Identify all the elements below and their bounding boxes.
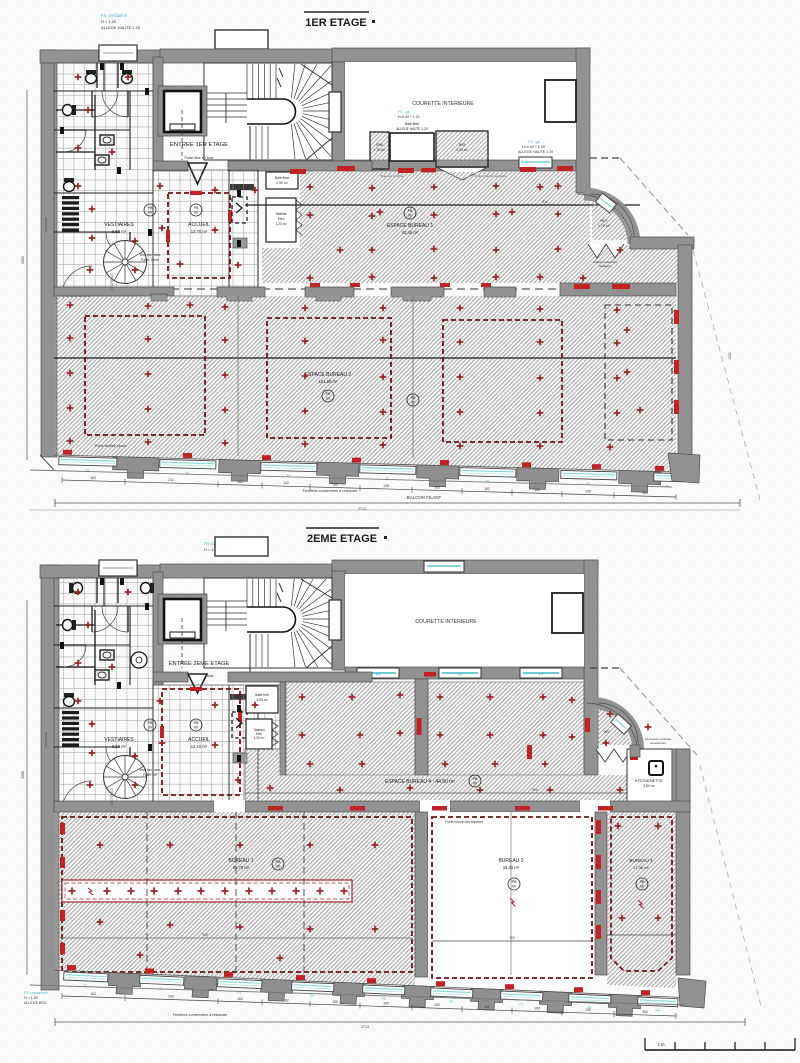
svg-text:3,50 m²: 3,50 m² bbox=[643, 784, 655, 788]
svg-text:90: 90 bbox=[640, 885, 644, 889]
svg-text:VESTIAIRE: VESTIAIRE bbox=[44, 217, 48, 233]
svg-text:Tableau: Tableau bbox=[275, 212, 287, 216]
svg-text:Palier 1er: Palier 1er bbox=[143, 773, 158, 777]
svg-text:3,50 m²: 3,50 m² bbox=[256, 698, 268, 702]
svg-text:160: 160 bbox=[383, 1002, 389, 1006]
svg-text:Salle Info: Salle Info bbox=[255, 693, 269, 697]
svg-text:F1: F1 bbox=[287, 474, 291, 478]
svg-text:121,50 m²: 121,50 m² bbox=[319, 379, 338, 384]
svg-text:139: 139 bbox=[585, 1008, 591, 1012]
svg-text:H=0.40 + 1.20: H=0.40 + 1.20 bbox=[398, 115, 420, 119]
svg-text:BUREAU 1: BUREAU 1 bbox=[228, 858, 253, 864]
svg-text:1 m: 1 m bbox=[658, 1042, 665, 1047]
svg-text:H = 1.20: H = 1.20 bbox=[24, 996, 38, 1000]
svg-text:PB: PB bbox=[408, 209, 413, 213]
svg-text:2555: 2555 bbox=[21, 771, 25, 779]
svg-text:0,90 m²: 0,90 m² bbox=[276, 181, 288, 185]
svg-text:accessoires: accessoires bbox=[650, 741, 666, 745]
svg-text:163: 163 bbox=[90, 992, 96, 996]
svg-text:163: 163 bbox=[90, 476, 96, 480]
svg-text:ESPACE BUREAU 2: ESPACE BUREAU 2 bbox=[305, 372, 352, 378]
svg-text:FS condamné: FS condamné bbox=[24, 991, 48, 995]
svg-text:ventilation: ventilation bbox=[598, 264, 612, 268]
svg-text:BUREAU 3: BUREAU 3 bbox=[630, 858, 653, 863]
svg-text:COURETTE INTERIEURE: COURETTE INTERIEURE bbox=[412, 101, 474, 107]
svg-text:VESTIBULE: VESTIBULE bbox=[110, 788, 114, 806]
svg-text:PB: PB bbox=[148, 721, 153, 725]
svg-text:F6: F6 bbox=[449, 1000, 453, 1004]
svg-text:Porte libre en bois: Porte libre en bois bbox=[185, 156, 214, 160]
svg-text:90: 90 bbox=[473, 782, 477, 786]
svg-text:90: 90 bbox=[194, 726, 198, 730]
svg-text:90: 90 bbox=[512, 885, 516, 889]
svg-text:VESTIAIRES: VESTIAIRES bbox=[104, 222, 134, 228]
svg-text:43,45 m²: 43,45 m² bbox=[402, 230, 419, 235]
svg-text:PB: PB bbox=[326, 392, 331, 396]
svg-text:90: 90 bbox=[148, 211, 152, 215]
svg-text:1,20 m²: 1,20 m² bbox=[275, 222, 287, 226]
svg-text:R05: R05 bbox=[459, 143, 465, 147]
svg-text:Porte fenêtre neuve: Porte fenêtre neuve bbox=[95, 444, 127, 448]
svg-text:12,10 m²: 12,10 m² bbox=[191, 744, 208, 749]
svg-text:PB: PB bbox=[194, 721, 199, 725]
svg-text:Mini esc. vers: Mini esc. vers bbox=[140, 768, 161, 772]
svg-text:142: 142 bbox=[283, 481, 289, 485]
svg-text:1ER ETAGE: 1ER ETAGE bbox=[305, 17, 367, 29]
svg-text:232: 232 bbox=[168, 995, 174, 999]
svg-text:F4: F4 bbox=[310, 994, 314, 998]
svg-text:163: 163 bbox=[534, 488, 540, 492]
svg-text:ACCUEIL: ACCUEIL bbox=[188, 222, 210, 228]
svg-text:R07: R07 bbox=[600, 218, 608, 223]
svg-text:VESTIBULE: VESTIBULE bbox=[110, 273, 114, 291]
svg-text:90: 90 bbox=[408, 214, 412, 218]
svg-text:1,70 m²: 1,70 m² bbox=[374, 148, 386, 152]
svg-text:162: 162 bbox=[484, 1005, 490, 1009]
svg-text:0,90 m²: 0,90 m² bbox=[456, 148, 468, 152]
svg-text:PB: PB bbox=[148, 206, 153, 210]
svg-text:ALLEGE HAUTE 1.20: ALLEGE HAUTE 1.20 bbox=[396, 127, 427, 131]
svg-text:Palier 2ème: Palier 2ème bbox=[141, 258, 159, 262]
svg-text:COURETTE INTERIEURE: COURETTE INTERIEURE bbox=[415, 619, 477, 625]
svg-text:163: 163 bbox=[434, 485, 440, 489]
svg-text:ESPACE BUREAU 1: ESPACE BUREAU 1 bbox=[387, 223, 434, 229]
svg-text:2555: 2555 bbox=[21, 256, 25, 264]
svg-text:ACCUEIL: ACCUEIL bbox=[188, 737, 210, 743]
svg-text:PB: PB bbox=[512, 880, 517, 884]
svg-text:9,50 m²: 9,50 m² bbox=[112, 744, 127, 749]
svg-text:F1: F1 bbox=[666, 484, 670, 488]
svg-text:ALLEGE BSO: ALLEGE BSO bbox=[24, 1001, 47, 1005]
svg-text:162: 162 bbox=[237, 480, 243, 484]
svg-text:Fenêtres conservées à restaure: Fenêtres conservées à restaurer bbox=[303, 489, 359, 493]
svg-text:F5: F5 bbox=[381, 997, 385, 1001]
svg-text:Elec: Elec bbox=[278, 217, 285, 221]
svg-text:FS...gé: FS...gé bbox=[398, 110, 410, 114]
svg-text:162: 162 bbox=[283, 998, 289, 1002]
svg-text:13,70 m²: 13,70 m² bbox=[191, 229, 208, 234]
svg-text:PB: PB bbox=[194, 206, 199, 210]
svg-text:H = 1.20: H = 1.20 bbox=[101, 19, 117, 24]
svg-text:2713: 2713 bbox=[358, 507, 366, 511]
svg-text:WC: WC bbox=[604, 729, 611, 734]
svg-text:17,30 m²: 17,30 m² bbox=[633, 865, 649, 870]
svg-text:H=0.40 + 1.20: H=0.40 + 1.20 bbox=[522, 145, 545, 149]
svg-text:F7: F7 bbox=[539, 672, 544, 677]
svg-text:F9: F9 bbox=[655, 1009, 659, 1013]
svg-text:9,50 m²: 9,50 m² bbox=[112, 229, 127, 234]
svg-text:139: 139 bbox=[383, 484, 389, 488]
svg-text:162: 162 bbox=[434, 1003, 440, 1007]
svg-text:163: 163 bbox=[642, 491, 648, 495]
svg-text:Mini esc. vers: Mini esc. vers bbox=[140, 253, 161, 257]
svg-text:Baie libre: Baie libre bbox=[275, 176, 289, 180]
svg-text:1,20 m²: 1,20 m² bbox=[254, 736, 265, 740]
svg-text:162: 162 bbox=[237, 997, 243, 1001]
svg-text:F1: F1 bbox=[386, 477, 390, 481]
svg-text:90: 90 bbox=[194, 211, 198, 215]
svg-text:ALLEGE HAUTE 1.20: ALLEGE HAUTE 1.20 bbox=[101, 25, 141, 30]
svg-text:PB: PB bbox=[473, 777, 478, 781]
svg-text:Fenêtres conservées à restaure: Fenêtres conservées à restaurer bbox=[173, 1013, 229, 1017]
svg-text:VESTIAIRES: VESTIAIRES bbox=[104, 737, 134, 743]
svg-text:211: 211 bbox=[168, 478, 174, 482]
svg-text:F7: F7 bbox=[519, 1003, 523, 1007]
svg-text:65,70 m²: 65,70 m² bbox=[233, 865, 250, 870]
svg-text:916: 916 bbox=[532, 788, 538, 792]
svg-text:BALCON FILANT: BALCON FILANT bbox=[407, 495, 442, 500]
svg-text:ALLEGE HAUTE 1.20: ALLEGE HAUTE 1.20 bbox=[518, 150, 553, 154]
svg-text:163: 163 bbox=[332, 483, 338, 487]
svg-text:163: 163 bbox=[534, 1006, 540, 1010]
svg-text:162: 162 bbox=[642, 1010, 648, 1014]
svg-text:916: 916 bbox=[202, 933, 208, 937]
svg-text:1,70 m²: 1,70 m² bbox=[598, 224, 611, 228]
svg-text:390: 390 bbox=[509, 936, 515, 940]
svg-text:FS condamné: FS condamné bbox=[101, 13, 128, 18]
svg-text:F5: F5 bbox=[376, 672, 381, 677]
svg-text:2713: 2713 bbox=[361, 1025, 369, 1029]
svg-text:ENTREE 1ER ETAGE: ENTREE 1ER ETAGE bbox=[170, 142, 228, 148]
svg-text:PB: PB bbox=[640, 880, 645, 884]
svg-text:155: 155 bbox=[332, 1000, 338, 1004]
svg-text:F1: F1 bbox=[83, 984, 87, 988]
svg-text:2130: 2130 bbox=[728, 352, 732, 359]
svg-text:ESPACE BUREAU 4 : 44,50 m²: ESPACE BUREAU 4 : 44,50 m² bbox=[385, 779, 456, 785]
svg-text:916: 916 bbox=[542, 200, 548, 204]
svg-text:139: 139 bbox=[585, 490, 591, 494]
svg-text:VESTIAIRE: VESTIAIRE bbox=[44, 732, 48, 748]
svg-text:F2: F2 bbox=[486, 479, 490, 483]
svg-text:162: 162 bbox=[484, 487, 490, 491]
svg-text:F6: F6 bbox=[458, 672, 463, 677]
svg-text:2EME ETAGE: 2EME ETAGE bbox=[307, 533, 377, 545]
svg-text:Baie libre: Baie libre bbox=[405, 122, 419, 126]
svg-text:F1: F1 bbox=[587, 482, 591, 486]
svg-text:ENTREE 2EME ETAGE: ENTREE 2EME ETAGE bbox=[169, 661, 230, 667]
svg-text:Porte neuve dito existant: Porte neuve dito existant bbox=[445, 820, 482, 824]
svg-text:FS...gé: FS...gé bbox=[528, 140, 540, 144]
svg-text:90: 90 bbox=[148, 726, 152, 730]
svg-text:KITCHENETTE: KITCHENETTE bbox=[635, 778, 663, 783]
svg-text:90: 90 bbox=[276, 865, 280, 869]
svg-text:90: 90 bbox=[326, 397, 330, 401]
svg-text:R06: R06 bbox=[376, 143, 382, 147]
svg-text:PB: PB bbox=[276, 860, 281, 864]
